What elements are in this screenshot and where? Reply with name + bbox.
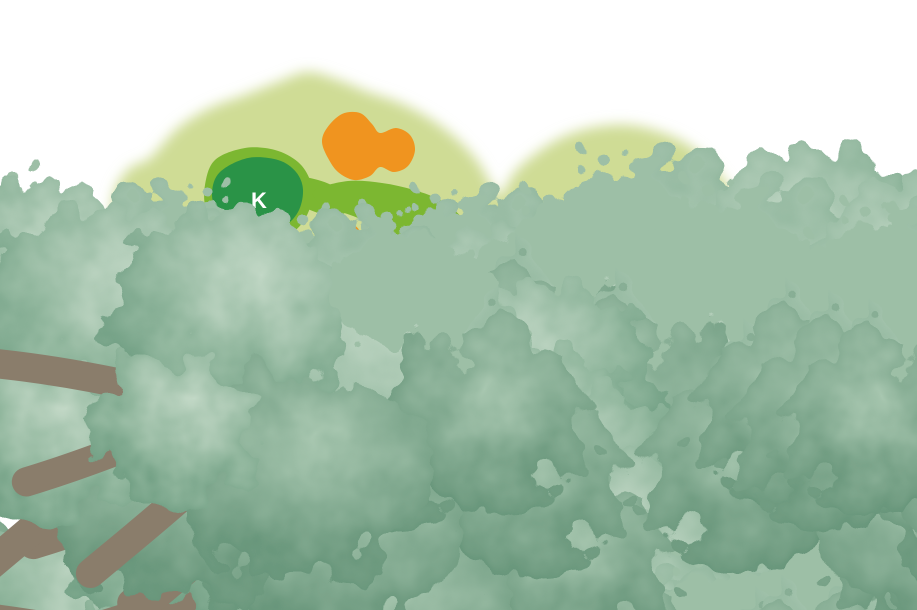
green-k-label: K xyxy=(251,188,267,213)
course-canvas: K B xyxy=(0,0,917,610)
golf-hole-map: K B xyxy=(0,0,917,610)
trees-layer xyxy=(0,147,917,610)
